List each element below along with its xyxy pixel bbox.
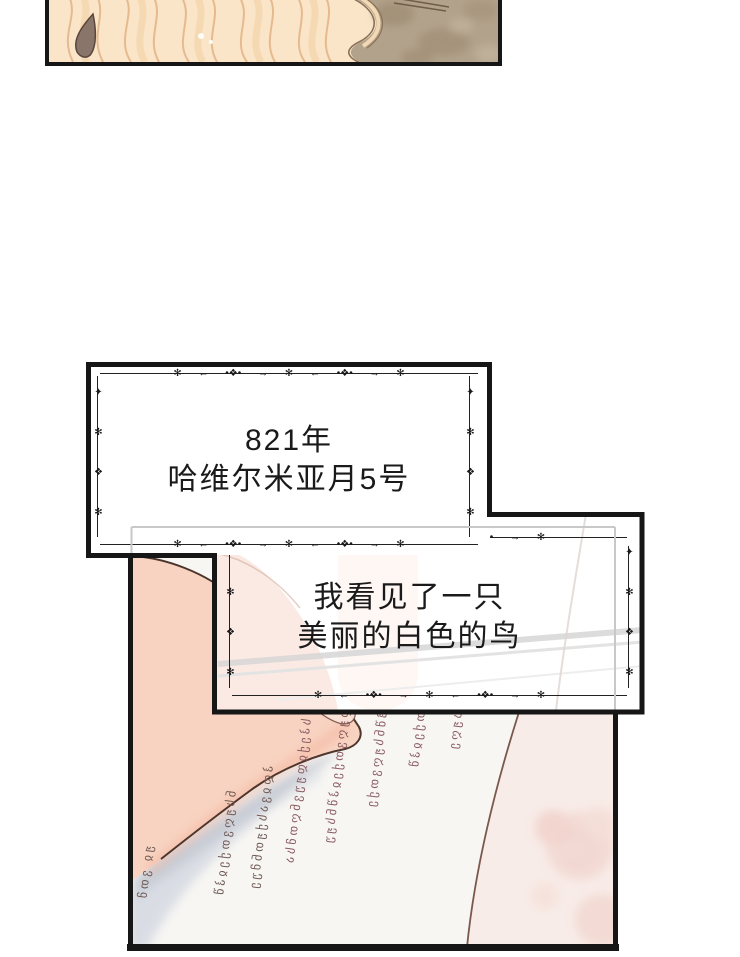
comic-page: ჟჲ ვთმ ნსჟღვთქეჲჰშ ჰდჲვასქჟთნმუე სჰექჲდჟ… [0,0,740,957]
panel-hair [45,0,502,66]
caption-date-line1: 821年 [168,421,411,460]
caption-date-text: 821年 哈维尔米亚月5号 [168,421,411,499]
caption-bird-line1: 我看见了一只 [298,578,522,617]
caption-date-line2: 哈维尔米亚月5号 [168,460,411,499]
caption-bird-line2: 美丽的白色的鸟 [298,617,522,656]
caption-date-box: 821年 哈维尔米亚月5号 [88,364,490,555]
hair-artwork [49,0,498,62]
caption-bird-text: 我看见了一只 美丽的白色的鸟 [298,578,522,656]
